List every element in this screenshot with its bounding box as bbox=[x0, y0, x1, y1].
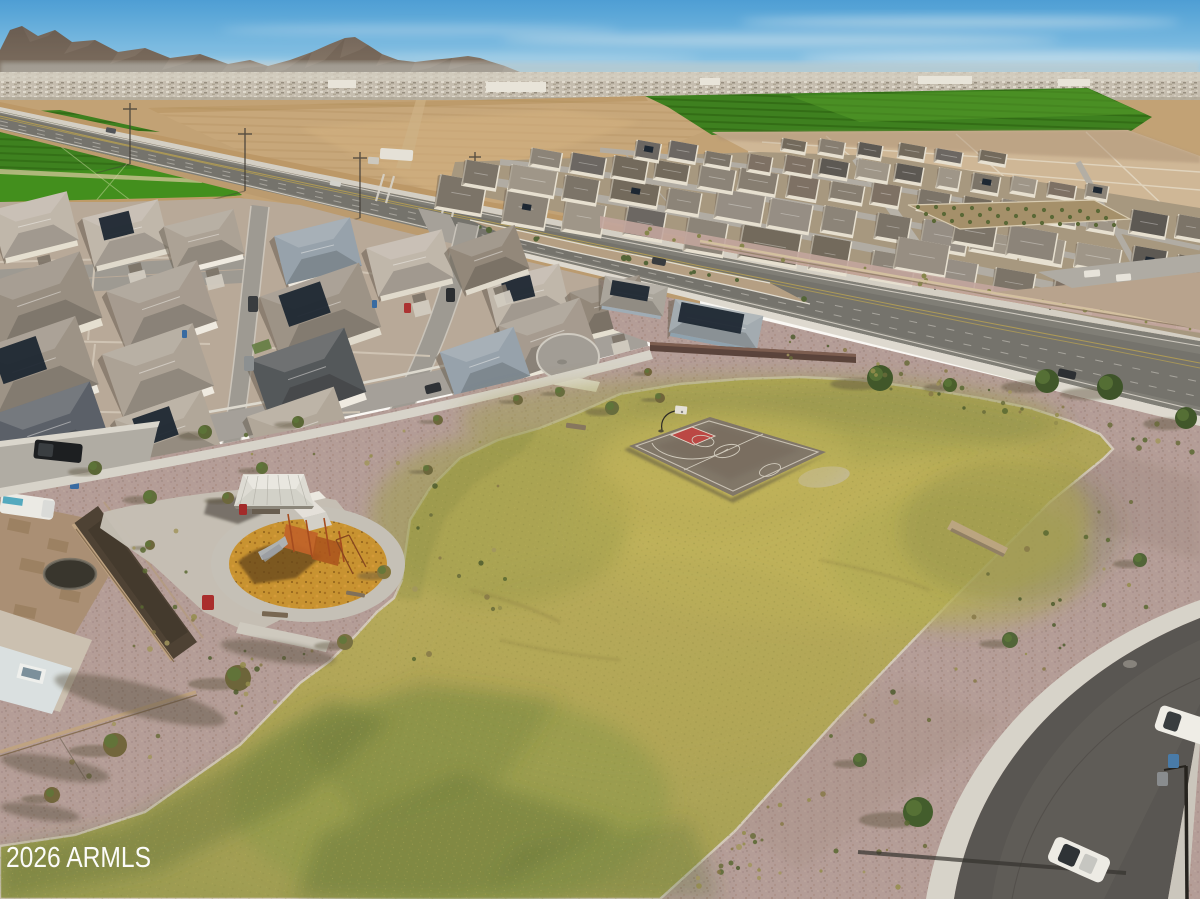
svg-text:© 2026 ARMLS: © 2026 ARMLS bbox=[0, 842, 151, 874]
